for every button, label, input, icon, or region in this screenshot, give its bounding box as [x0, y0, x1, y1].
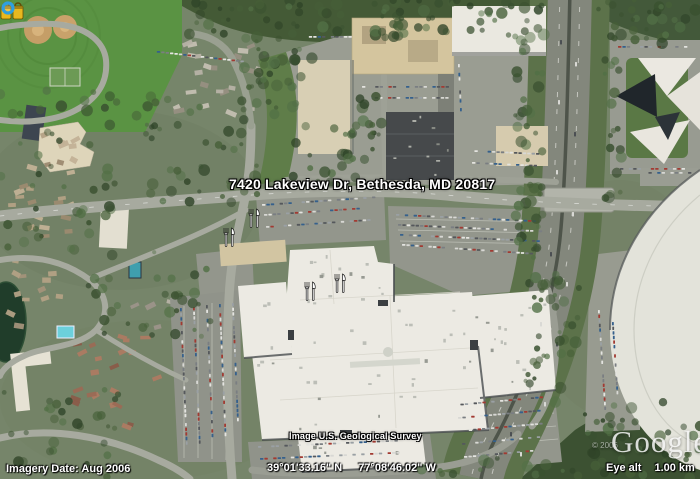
status-coordinates: 39°01'33.16" N 77°08'46.02" W: [267, 462, 436, 474]
imagery-attribution: Image U.S. Geological Survey: [289, 431, 422, 441]
streaming-indicator-icon: [0, 0, 16, 16]
eye-alt-label: Eye alt: [606, 462, 641, 474]
address-label: 7420 Lakeview Dr, Bethesda, MD 20817: [229, 176, 495, 192]
google-earth-viewport[interactable]: 7420 Lakeview Dr, Bethesda, MD 20817 Ima…: [0, 0, 700, 479]
dining-poi-icon[interactable]: [247, 208, 261, 229]
dining-poi-icon[interactable]: [303, 281, 317, 302]
longitude-readout: 77°08'46.02" W: [358, 462, 436, 474]
latitude-readout: 39°01'33.16" N: [267, 462, 342, 474]
google-logo: Google™: [611, 424, 700, 460]
office-complex: [616, 58, 700, 164]
eye-alt-value: 1.00 km: [654, 462, 694, 474]
swimming-pool: [57, 326, 74, 338]
imagery-date: Imagery Date: Aug 2006: [6, 463, 130, 475]
satellite-imagery[interactable]: [0, 0, 700, 479]
dining-poi-icon[interactable]: [222, 227, 236, 248]
dining-poi-icon[interactable]: [333, 273, 347, 294]
eye-altitude: Eye alt 1.00 km: [606, 462, 695, 474]
